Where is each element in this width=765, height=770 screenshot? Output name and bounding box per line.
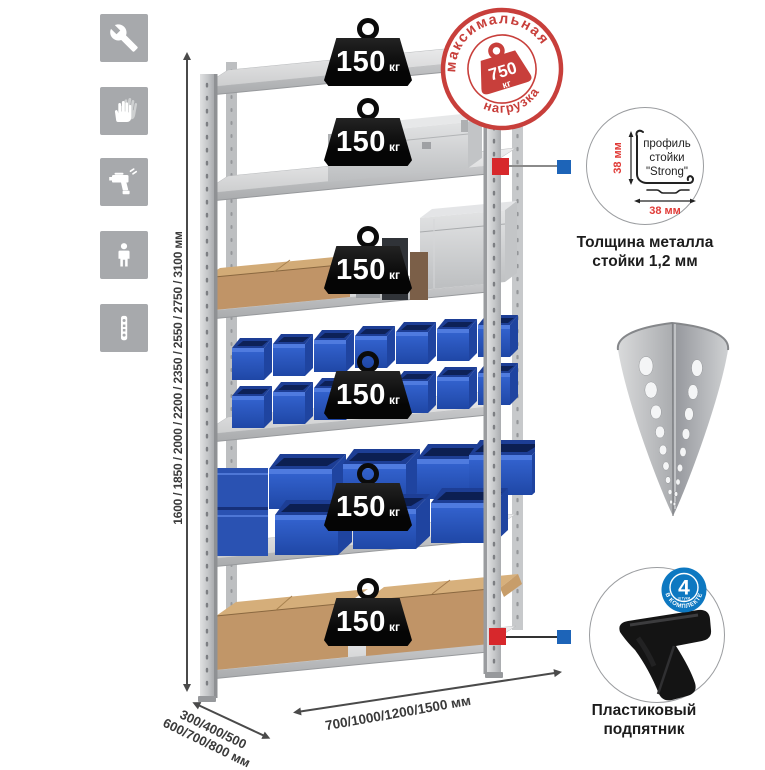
profile-caption: Толщина металла стойки 1,2 мм <box>565 233 725 271</box>
profile-callout-blue-marker <box>557 160 571 174</box>
foot-caption: Пластиковый подпятник <box>564 701 724 739</box>
profile-callout-line <box>508 165 558 167</box>
corner-post-image <box>596 304 751 529</box>
profile-caption-line2: стойки 1,2 мм <box>565 252 725 271</box>
profile-caption-line1: Толщина металла <box>565 233 725 252</box>
height-dimension-line <box>186 56 188 688</box>
weight-ring <box>357 463 379 485</box>
shelf-load-badge-3: 150кг <box>324 226 412 294</box>
profile-dim-vertical: 38 мм <box>612 142 624 174</box>
max-load-stamp: максимальная нагрузка 750 кг <box>437 4 567 134</box>
profile-dim-horizontal: 38 мм <box>649 205 681 217</box>
person-icon <box>100 231 148 279</box>
drill-icon <box>100 158 148 206</box>
shelf-load-badge-4: 150кг <box>324 351 412 419</box>
profile-detail-circle: 38 мм 38 мм профиль стойки "Strong" <box>586 107 704 225</box>
weight-body: 150кг <box>324 246 412 294</box>
product-infographic: { "canvas": {"bg": "#ffffff"}, "side_ico… <box>0 0 765 765</box>
profile-label-3: "Strong" <box>646 166 688 178</box>
weight-body: 150кг <box>324 598 412 646</box>
weight-ring <box>357 98 379 120</box>
weight-ring <box>357 578 379 600</box>
included-count-badge: 4 штуки В КОМПЛЕКТЕ <box>660 566 708 614</box>
profile-label-2: стойки <box>649 152 684 164</box>
foot-callout-blue-marker <box>557 630 571 644</box>
profile-callout-red-marker <box>492 158 509 175</box>
profile-label-1: профиль <box>643 138 691 150</box>
gloves-glyph <box>108 95 140 127</box>
foot-caption-line2: подпятник <box>564 720 724 739</box>
weight-ring <box>357 18 379 40</box>
weight-body: 150кг <box>324 483 412 531</box>
profile-detail-drawing: 38 мм 38 мм профиль стойки "Strong" <box>587 108 703 224</box>
badge-sub-label: штуки <box>678 596 691 601</box>
drill-glyph <box>108 166 140 198</box>
shelf-load-badge-2: 150кг <box>324 98 412 166</box>
person-glyph <box>109 240 139 270</box>
shelf-load-badge-6: 150кг <box>324 578 412 646</box>
height-dimension-label: 1600 / 1850 / 2000 / 2200 / 2350 / 2550 … <box>171 231 185 524</box>
weight-ring <box>357 351 379 373</box>
shelf-load-badge-5: 150кг <box>324 463 412 531</box>
foot-caption-line1: Пластиковый <box>564 701 724 720</box>
weight-body: 150кг <box>324 118 412 166</box>
foot-callout-red-marker <box>489 628 506 645</box>
gloves-icon <box>100 87 148 135</box>
rack-post-glyph <box>109 313 139 343</box>
rack-post-icon <box>100 304 148 352</box>
foot-callout-line <box>505 636 557 638</box>
weight-body: 150кг <box>324 38 412 86</box>
weight-ring <box>357 226 379 248</box>
wrench-glyph <box>109 23 139 53</box>
shelf-load-badge-1: 150кг <box>324 18 412 86</box>
weight-body: 150кг <box>324 371 412 419</box>
wrench-icon <box>100 14 148 62</box>
